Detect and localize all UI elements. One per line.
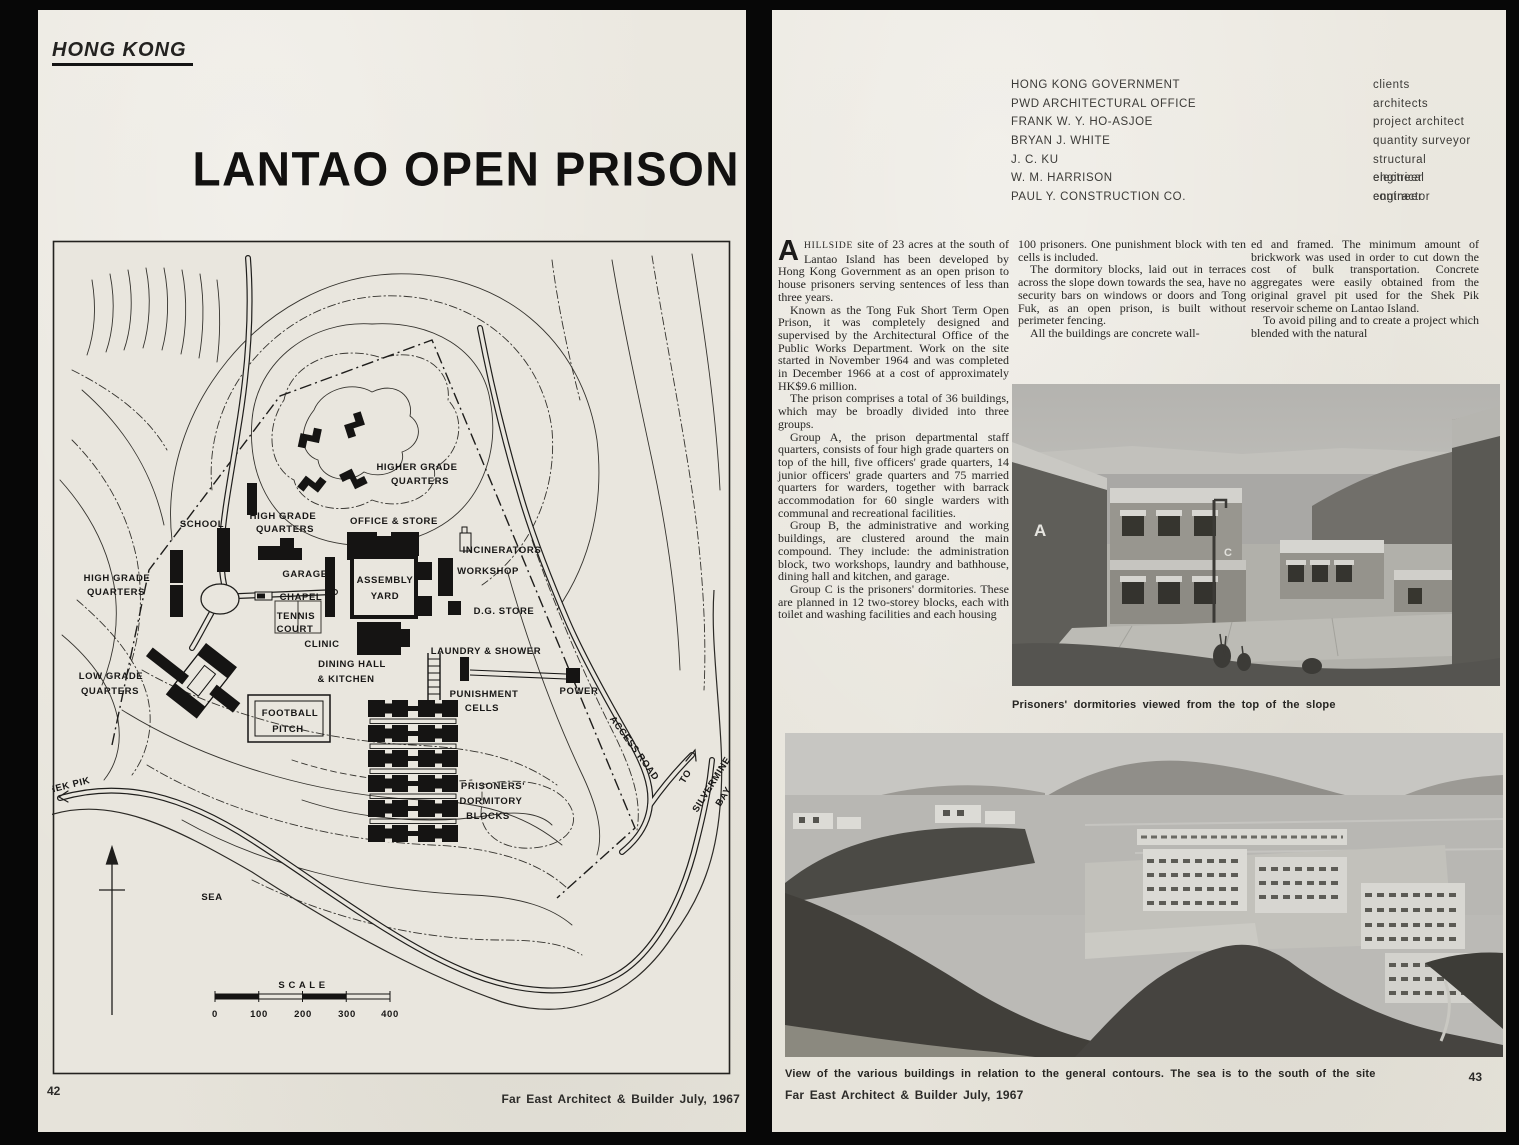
assembly-yard (352, 557, 416, 617)
credit-name: PAUL Y. CONSTRUCTION CO. (1011, 191, 1186, 203)
credit-row: PAUL Y. CONSTRUCTION CO.contractor (1011, 188, 1473, 207)
photo1-caption: Prisoners' dormitories viewed from the t… (1012, 698, 1500, 712)
site-plan-map: 0100200300400 HIGHER GRADEQUARTERSSCHOOL… (52, 240, 731, 1075)
map-label: POWER (560, 686, 599, 697)
map-label: D.G. STORE (474, 606, 535, 617)
map-label: QUARTERS (256, 524, 314, 535)
magazine-spread: HONG KONG LANTAO OPEN PRISON (0, 0, 1519, 1145)
map-label: S C A L E (278, 980, 325, 991)
credit-row: BRYAN J. WHITEquantity surveyor (1011, 132, 1473, 151)
article-paragraph: The dormitory blocks, laid out in terrac… (1018, 263, 1246, 327)
article-paragraph: Group B, the administrative and working … (778, 519, 1009, 583)
credit-row: HONG KONG GOVERNMENTclients (1011, 76, 1473, 95)
credit-name: PWD ARCHITECTURAL OFFICE (1011, 98, 1196, 110)
lead-word: HILLSIDE (804, 241, 853, 251)
map-label: OFFICE & STORE (350, 516, 438, 527)
roundabout (201, 584, 239, 614)
map-label: TENNIS (277, 611, 315, 622)
map-label: PUNISHMENT (450, 689, 519, 700)
credit-row: FRANK W. Y. HO-ASJOEproject architect (1011, 113, 1473, 132)
map-label: CHAPEL (280, 592, 323, 603)
article-paragraph: All the buildings are concrete wall- (1018, 327, 1246, 340)
map-label: WORKSHOP (457, 566, 519, 577)
map-label: DINING HALL (318, 659, 386, 670)
map-label: YARD (371, 591, 399, 602)
scale-tick-label: 200 (294, 1009, 312, 1020)
map-label: CELLS (465, 703, 499, 714)
map-label: QUARTERS (81, 686, 139, 697)
map-label: LAUNDRY & SHOWER (431, 646, 541, 657)
article-col2: 100 prisoners. One punishment block with… (1018, 238, 1246, 340)
article-paragraph: Group A, the prison departmental staff q… (778, 431, 1009, 520)
left-page: HONG KONG LANTAO OPEN PRISON (38, 10, 746, 1132)
credit-name: BRYAN J. WHITE (1011, 135, 1110, 147)
map-label: BLOCKS (466, 811, 510, 822)
page-number-right: 43 (1469, 1070, 1482, 1084)
scale-tick-label: 400 (381, 1009, 399, 1020)
journal-footer-right: Far East Architect & Builder July, 1967 (785, 1088, 1024, 1102)
map-label: CLINIC (304, 639, 339, 650)
map-label: SEA (201, 892, 222, 903)
credit-role: project architect (1373, 113, 1464, 132)
scale-tick-label: 100 (250, 1009, 268, 1020)
credit-name: HONG KONG GOVERNMENT (1011, 79, 1180, 91)
scale-tick-label: 0 (212, 1009, 218, 1020)
credit-row: W. M. HARRISONelectrical engineer (1011, 169, 1473, 188)
map-label: PRISONERS' (461, 781, 525, 792)
high-grade-quarters-west (170, 550, 183, 583)
map-label: QUARTERS (87, 587, 145, 598)
credit-role: quantity surveyor (1373, 132, 1471, 151)
credit-role: clients (1373, 76, 1410, 95)
map-label: COURT (277, 624, 314, 635)
article-paragraph: Group C is the prisoners' dormitories. T… (778, 583, 1009, 621)
dormitories-photo: A C (1012, 384, 1500, 686)
article-col1: AHILLSIDE site of 23 acres at the south … (778, 238, 1009, 621)
map-label: SCHOOL (180, 519, 224, 530)
dg-store-building (448, 601, 461, 615)
map-label: INCINERATORS (463, 545, 542, 556)
section-kicker: HONG KONG (52, 38, 193, 66)
map-label: HIGH GRADE (250, 511, 317, 522)
svg-text:C: C (1224, 547, 1232, 559)
map-label: PITCH (272, 724, 304, 735)
article-paragraph: To avoid piling and to create a project … (1251, 314, 1479, 339)
scale-tick-label: 300 (338, 1009, 356, 1020)
map-label: & KITCHEN (317, 674, 374, 685)
power-building (566, 668, 580, 683)
map-label: ASSEMBLY (357, 575, 414, 586)
credit-name: FRANK W. Y. HO-ASJOE (1011, 116, 1153, 128)
map-label: DORMITORY (460, 796, 523, 807)
credit-row: J. C. KUstructural engineer (1011, 151, 1473, 170)
article-paragraph: 100 prisoners. One punishment block with… (1018, 238, 1246, 263)
article-col3: ed and framed. The minimum amount of bri… (1251, 238, 1479, 340)
credits: HONG KONG GOVERNMENTclientsPWD ARCHITECT… (1011, 76, 1473, 207)
article-title: LANTAO OPEN PRISON (192, 145, 740, 193)
photo2-caption: View of the various buildings in relatio… (785, 1067, 1503, 1081)
credit-name: W. M. HARRISON (1011, 172, 1113, 184)
dropcap: A (778, 239, 799, 263)
credit-row: PWD ARCHITECTURAL OFFICEarchitects (1011, 95, 1473, 114)
map-label: QUARTERS (391, 476, 449, 487)
credit-role: contractor (1373, 188, 1430, 207)
page-number-left: 42 (47, 1084, 60, 1098)
article-paragraph: The prison comprises a total of 36 build… (778, 392, 1009, 430)
journal-footer-left: Far East Architect & Builder July, 1967 (501, 1092, 740, 1106)
map-label: GARAGE (282, 569, 327, 580)
map-label: FOOTBALL (262, 708, 319, 719)
map-label: HIGH GRADE (84, 573, 151, 584)
right-building-edge (1452, 408, 1500, 686)
lead-paragraph: AHILLSIDE site of 23 acres at the south … (778, 238, 1009, 304)
article-paragraph: Known as the Tong Fuk Short Term Open Pr… (778, 304, 1009, 393)
article-paragraph: ed and framed. The minimum amount of bri… (1251, 238, 1479, 314)
workshop-building (438, 558, 453, 596)
credit-name: J. C. KU (1011, 154, 1059, 166)
svg-text:A: A (1034, 521, 1046, 540)
right-page: HONG KONG GOVERNMENTclientsPWD ARCHITECT… (772, 10, 1506, 1132)
credit-role: architects (1373, 95, 1428, 114)
site-plan-figure: 0100200300400 HIGHER GRADEQUARTERSSCHOOL… (52, 240, 731, 1075)
laundry-building (460, 657, 469, 681)
map-label: HIGHER GRADE (376, 462, 457, 473)
dining-hall-building (357, 622, 401, 655)
main-dormitory-building: C (1110, 488, 1246, 624)
school-building (217, 528, 230, 572)
map-label: LOW GRADE (79, 671, 144, 682)
site-aerial-photo (785, 733, 1503, 1057)
